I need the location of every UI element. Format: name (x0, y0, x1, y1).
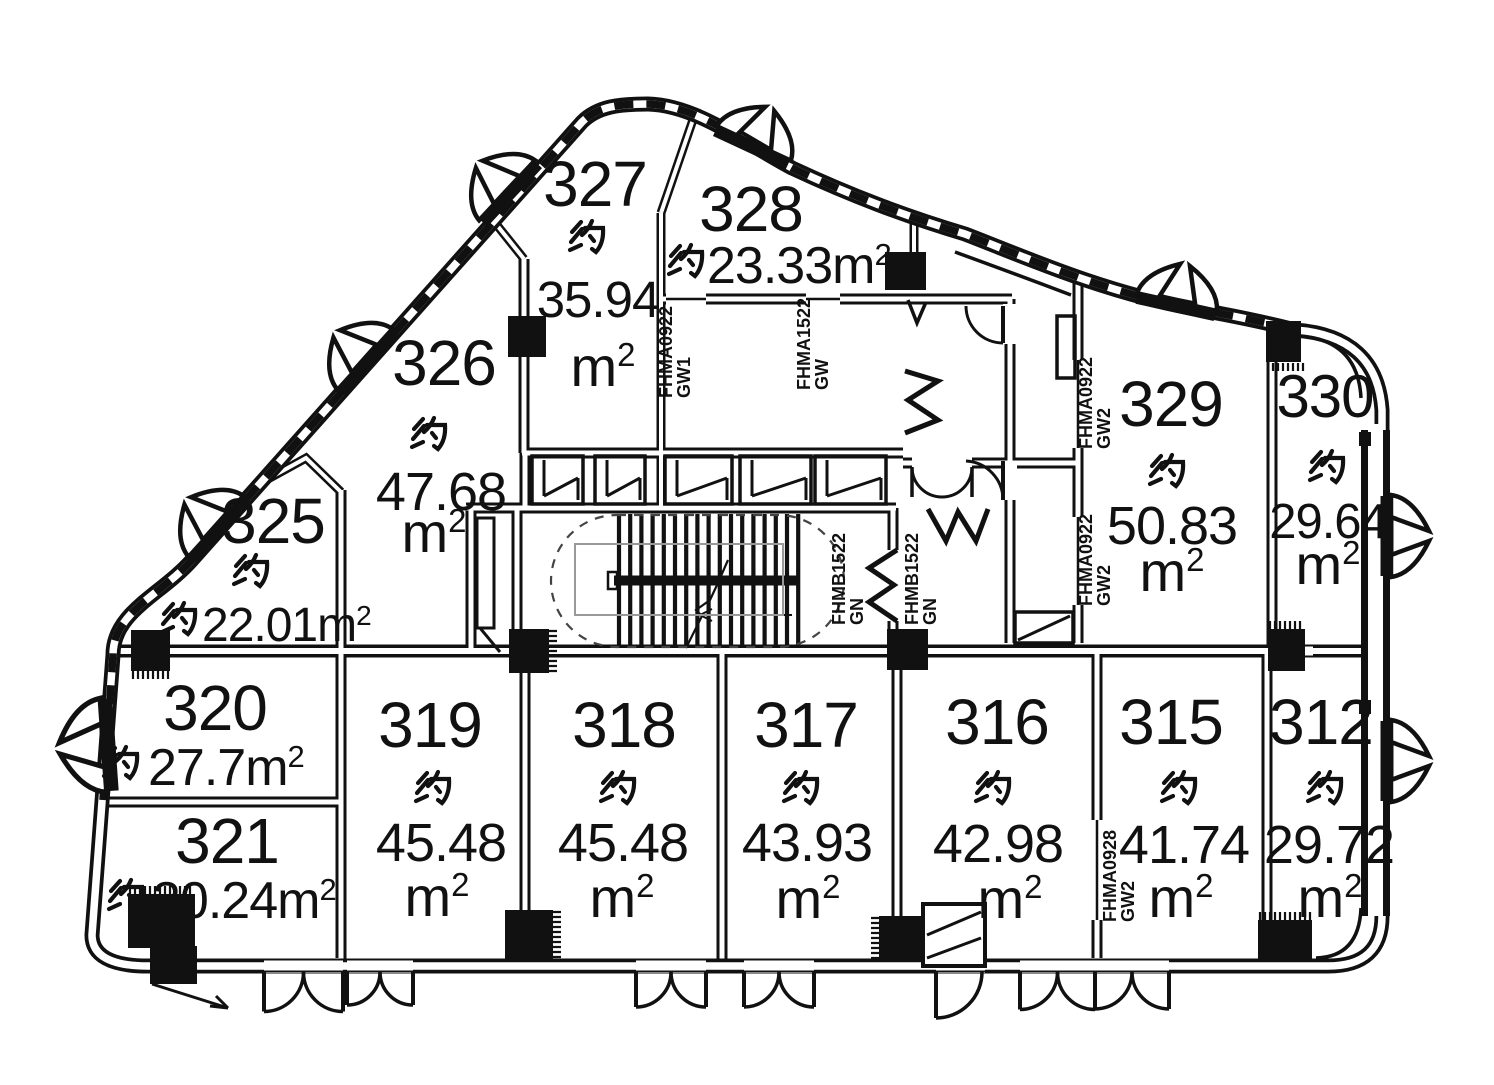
svg-text:FHMB1522: FHMB1522 (829, 533, 849, 625)
svg-text:22.01m2: 22.01m2 (202, 599, 371, 652)
svg-text:FHMA0922: FHMA0922 (1076, 357, 1096, 449)
svg-text:328: 328 (699, 173, 803, 245)
svg-text:318: 318 (572, 689, 676, 761)
svg-text:GN: GN (847, 598, 867, 625)
svg-text:GW2: GW2 (1118, 881, 1138, 922)
svg-text:320: 320 (163, 672, 267, 744)
svg-text:FHMA0922: FHMA0922 (1076, 514, 1096, 606)
svg-text:42.98: 42.98 (933, 814, 1063, 874)
svg-text:325: 325 (221, 485, 325, 557)
svg-text:317: 317 (754, 689, 858, 761)
svg-text:FHMB1522: FHMB1522 (902, 533, 922, 625)
svg-text:FHMA1522: FHMA1522 (794, 298, 814, 390)
svg-text:GN: GN (920, 598, 940, 625)
svg-text:23.33m2: 23.33m2 (707, 237, 891, 295)
svg-text:321: 321 (175, 805, 279, 877)
svg-text:326: 326 (392, 327, 496, 399)
svg-text:43.93: 43.93 (742, 813, 872, 873)
svg-text:45.48: 45.48 (558, 813, 688, 873)
svg-text:FHMA0922: FHMA0922 (656, 306, 676, 398)
svg-text:319: 319 (378, 689, 482, 761)
svg-text:315: 315 (1119, 686, 1223, 758)
svg-text:35.94: 35.94 (537, 271, 660, 328)
svg-text:316: 316 (945, 686, 1049, 758)
svg-text:30.24m2: 30.24m2 (152, 872, 336, 930)
svg-text:GW2: GW2 (1094, 408, 1114, 449)
svg-text:GW1: GW1 (674, 357, 694, 398)
svg-text:GW: GW (812, 359, 832, 390)
svg-text:330: 330 (1276, 363, 1373, 430)
svg-text:FHMA0928: FHMA0928 (1100, 830, 1120, 922)
svg-text:45.48: 45.48 (376, 813, 506, 873)
svg-text:312: 312 (1269, 686, 1373, 758)
svg-text:27.7m2: 27.7m2 (148, 739, 304, 797)
svg-text:GW2: GW2 (1094, 565, 1114, 606)
svg-text:329: 329 (1119, 368, 1223, 440)
svg-text:327: 327 (543, 148, 647, 220)
